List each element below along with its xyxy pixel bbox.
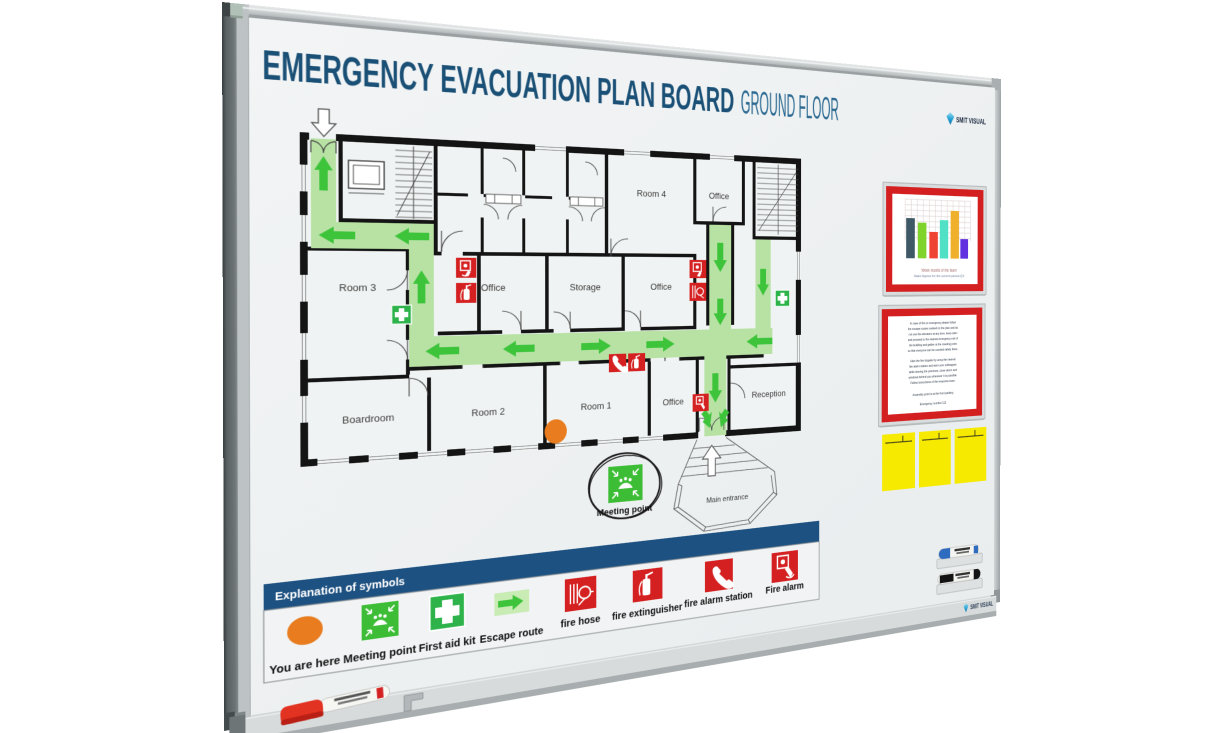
svg-text:Week results of the team: Week results of the team [921,269,957,273]
svg-text:Office: Office [650,282,672,292]
svg-text:Room 3: Room 3 [339,282,376,293]
svg-text:GROUND FLOOR: GROUND FLOOR [741,83,839,127]
svg-text:Room 2: Room 2 [471,406,505,418]
svg-text:Room 1: Room 1 [581,401,612,413]
svg-text:Storage: Storage [570,282,601,292]
svg-text:Office: Office [709,191,729,201]
svg-text:Office: Office [481,283,506,294]
svg-text:Room 4: Room 4 [637,189,667,200]
svg-text:Office: Office [663,397,684,408]
svg-text:Reception: Reception [752,389,786,400]
svg-text:Sales figures for the current: Sales figures for the current period Q3 [914,274,964,278]
